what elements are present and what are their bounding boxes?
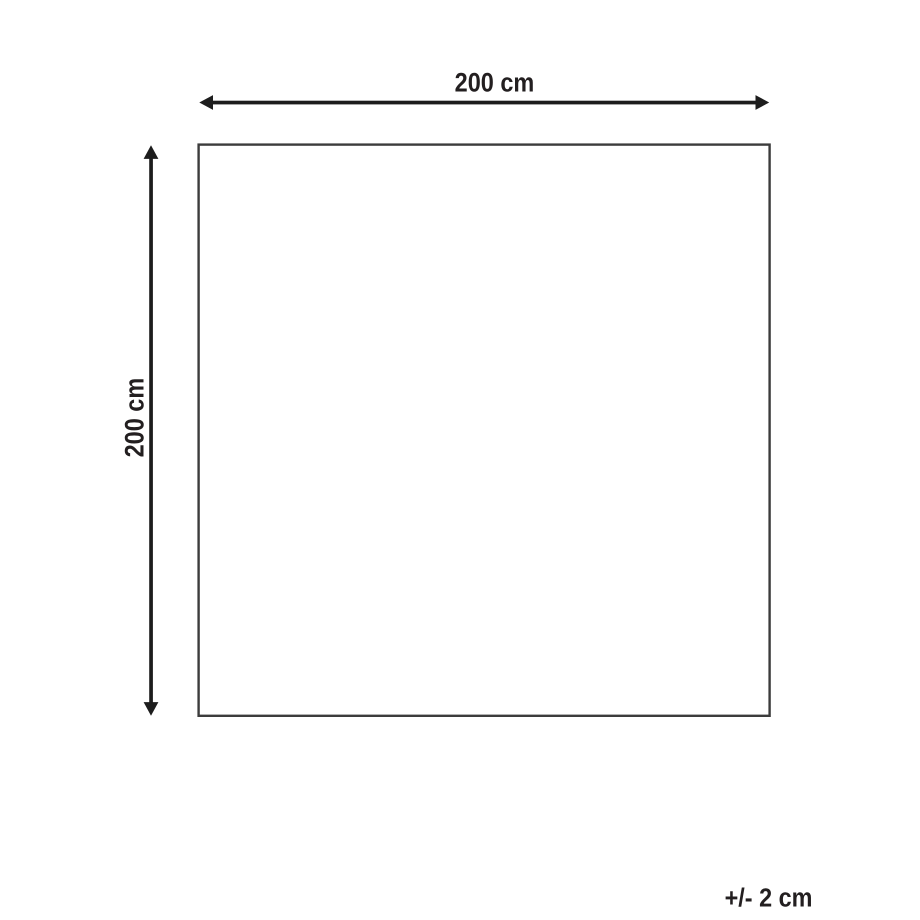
svg-text:200 cm: 200 cm: [120, 378, 150, 458]
svg-text:200 cm: 200 cm: [455, 68, 535, 98]
svg-text:+/- 2 cm: +/- 2 cm: [725, 884, 813, 912]
